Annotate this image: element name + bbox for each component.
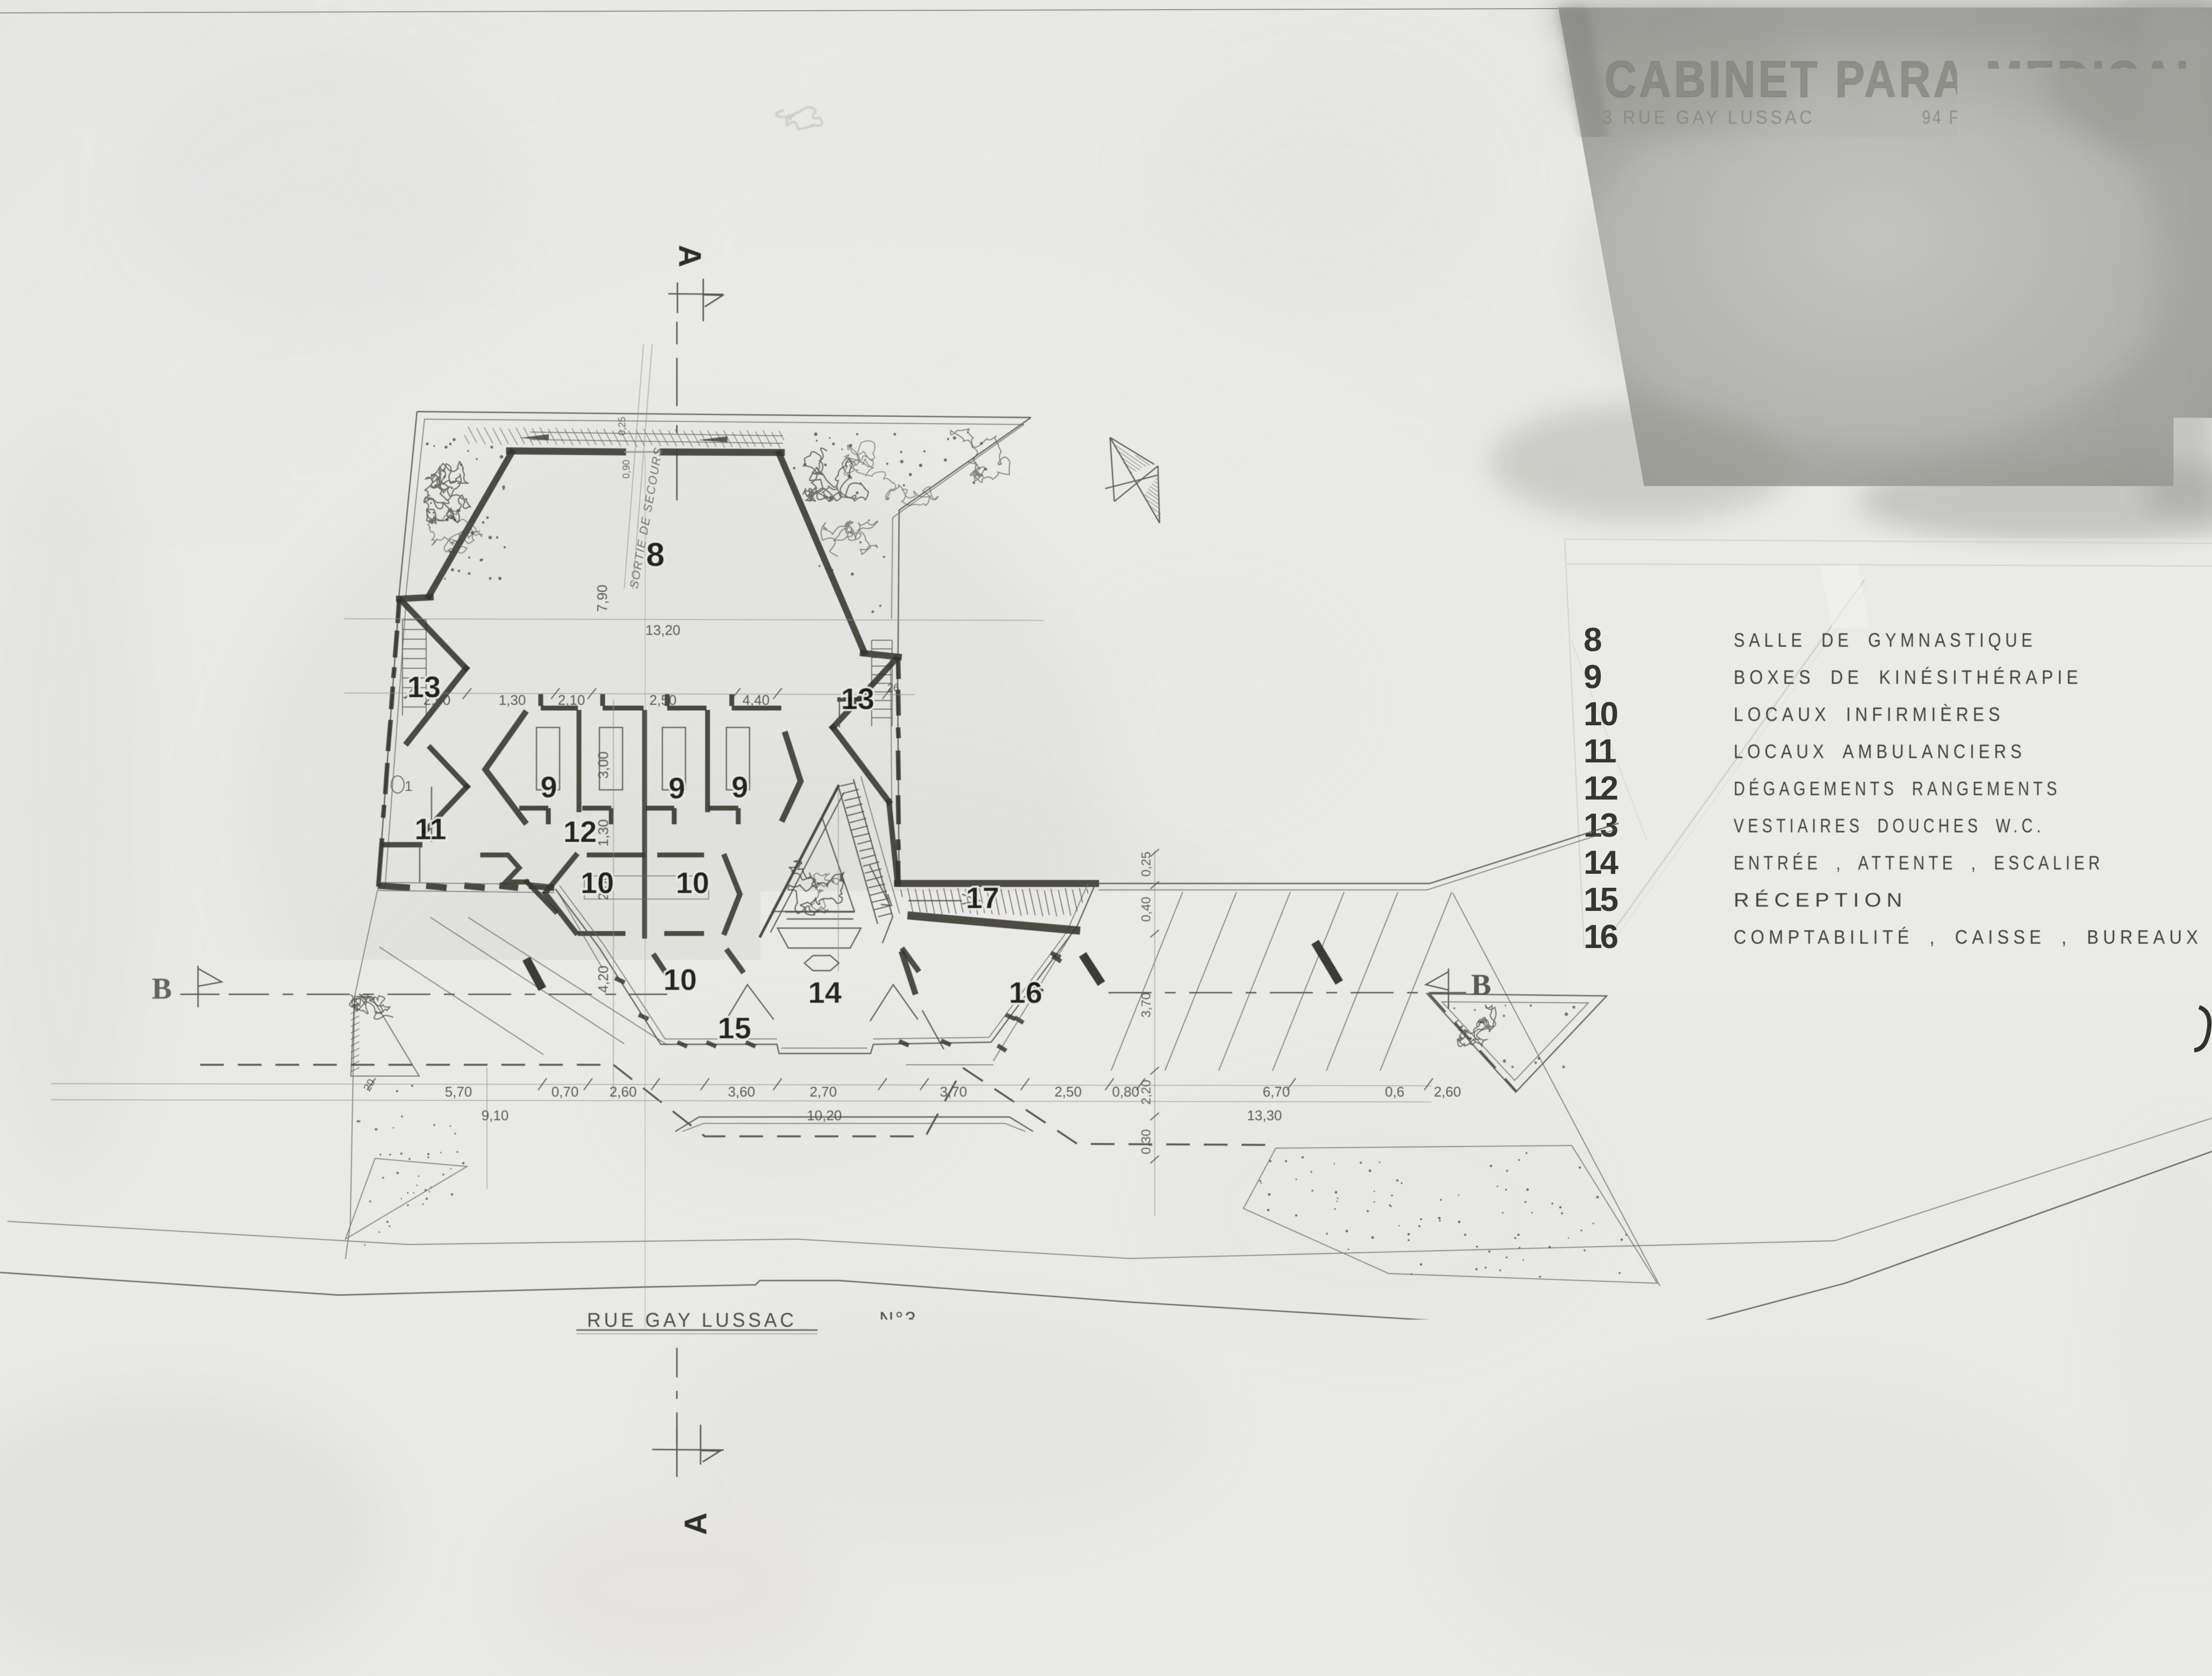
svg-text:ESCALIER 1° - DÉBARRAS: ESCALIER 1° - DÉBARRAS xyxy=(1734,963,2042,985)
svg-text:10: 10 xyxy=(676,866,709,900)
svg-text:11: 11 xyxy=(414,812,446,846)
svg-text:A: A xyxy=(672,245,707,267)
svg-text:10: 10 xyxy=(663,963,697,996)
svg-text:PARIS LE 9/5/74: PARIS LE 9/5/74 xyxy=(1985,461,2185,484)
svg-text:LOCAUX AMBULANCIERS: LOCAUX AMBULANCIERS xyxy=(1734,740,2026,762)
svg-text:0,90: 0,90 xyxy=(621,459,632,478)
svg-text:17: 17 xyxy=(966,881,999,915)
svg-text:14: 14 xyxy=(1584,844,1619,881)
svg-text:REZ -DE- CHAUSSEE: REZ -DE- CHAUSSEE xyxy=(1759,210,2110,244)
svg-text:ECHELLE : 1 cm/m: ECHELLE : 1 cm/m xyxy=(1965,355,2164,378)
svg-text:9: 9 xyxy=(731,770,748,804)
svg-text:4,40: 4,40 xyxy=(743,692,770,708)
svg-text:4,20: 4,20 xyxy=(595,966,611,993)
svg-text:8: 8 xyxy=(1584,621,1601,659)
svg-text:3,70: 3,70 xyxy=(1139,993,1154,1018)
svg-text:3 RUE GAY LUSSAC: 3 RUE GAY LUSSAC xyxy=(1602,107,1815,128)
svg-text:5,70: 5,70 xyxy=(445,1084,472,1100)
svg-text:0,6: 0,6 xyxy=(1385,1084,1404,1100)
svg-text:CABINET PARA-MEDICAL: CABINET PARA-MEDICAL xyxy=(1605,51,2206,108)
svg-text:0,25: 0,25 xyxy=(617,416,627,435)
svg-text:17: 17 xyxy=(1584,956,1617,993)
svg-text:2,10: 2,10 xyxy=(558,692,585,708)
svg-text:RUE GAY LUSSAC: RUE GAY LUSSAC xyxy=(587,1309,797,1331)
svg-text:N°3: N°3 xyxy=(879,1308,917,1330)
svg-text:2: 2 xyxy=(2125,247,2151,338)
svg-text:3,60: 3,60 xyxy=(728,1084,755,1100)
svg-text:2,70: 2,70 xyxy=(810,1084,837,1100)
svg-text:0,80: 0,80 xyxy=(1112,1084,1140,1100)
svg-text:A: A xyxy=(679,1512,713,1535)
svg-text:15: 15 xyxy=(718,1011,751,1045)
svg-text:2,60: 2,60 xyxy=(1434,1084,1461,1100)
svg-text:12: 12 xyxy=(1584,770,1617,807)
svg-text:1,30: 1,30 xyxy=(499,692,526,708)
svg-text:13: 13 xyxy=(407,670,441,704)
svg-text:13,30: 13,30 xyxy=(1247,1107,1282,1123)
svg-text:B: B xyxy=(152,972,172,1006)
svg-text:B: B xyxy=(1471,968,1491,1002)
svg-text:10: 10 xyxy=(1584,696,1617,733)
svg-text:16: 16 xyxy=(1584,918,1617,956)
svg-text:2,50: 2,50 xyxy=(649,692,677,708)
svg-text:3,70: 3,70 xyxy=(940,1084,967,1100)
svg-text:RÉCEPTION: RÉCEPTION xyxy=(1734,889,1907,911)
svg-text:PLAN: PLAN xyxy=(1837,170,1934,202)
svg-text:2,60: 2,60 xyxy=(610,1084,637,1100)
svg-text:9: 9 xyxy=(1584,659,1601,696)
svg-text:COMPTABILITÉ , CAISSE , BUREAU: COMPTABILITÉ , CAISSE , BUREAUX xyxy=(1734,926,2202,948)
svg-text:8: 8 xyxy=(646,536,665,574)
svg-text:11: 11 xyxy=(1584,733,1616,770)
svg-text:3,00: 3,00 xyxy=(595,752,611,779)
svg-text:6,70: 6,70 xyxy=(1263,1084,1290,1100)
svg-text:15: 15 xyxy=(1584,881,1617,918)
svg-text:7,90: 7,90 xyxy=(594,585,610,612)
svg-text:13: 13 xyxy=(841,682,874,716)
svg-text:12: 12 xyxy=(563,815,597,848)
svg-text:BOXES DE KINÉSITHÉRAPIE: BOXES DE KINÉSITHÉRAPIE xyxy=(1734,666,2082,688)
svg-text:2,50: 2,50 xyxy=(1055,1084,1082,1100)
svg-text:E PROPRIETAIRE.: E PROPRIETAIRE. xyxy=(1561,355,1758,378)
svg-text:9: 9 xyxy=(540,770,557,804)
svg-text:0,40: 0,40 xyxy=(1139,897,1154,922)
svg-text:SALLE DE GYMNASTIQUE: SALLE DE GYMNASTIQUE xyxy=(1734,629,2037,651)
svg-text:13,20: 13,20 xyxy=(645,622,680,638)
svg-text:10,20: 10,20 xyxy=(807,1107,842,1123)
svg-text:VESTIAIRES DOUCHES W.C.: VESTIAIRES DOUCHES W.C. xyxy=(1734,815,2045,837)
svg-text:26: 26 xyxy=(887,682,899,694)
svg-text:9,10: 9,10 xyxy=(482,1107,509,1123)
svg-text:16: 16 xyxy=(1009,975,1042,1009)
svg-text:94 FONTENAY-SOUS-BOIS: 94 FONTENAY-SOUS-BOIS xyxy=(1922,107,2154,128)
svg-text:0,30: 0,30 xyxy=(1139,1129,1154,1155)
svg-text:0,70: 0,70 xyxy=(552,1084,579,1100)
svg-text:1,30: 1,30 xyxy=(595,819,611,847)
svg-text:2,20: 2,20 xyxy=(1139,1080,1154,1105)
svg-text:9: 9 xyxy=(668,771,685,805)
svg-text:ENTRÉE , ATTENTE , ESCALIER: ENTRÉE , ATTENTE , ESCALIER xyxy=(1734,852,2104,874)
svg-text:IER D’ARCHITECTURE ET D’AME: IER D’ARCHITECTURE ET D’AME NAGEMENT 40 … xyxy=(1595,487,2208,507)
svg-text:DÉGAGEMENTS RANGEMENTS: DÉGAGEMENTS RANGEMENTS xyxy=(1734,777,2061,800)
svg-text:14: 14 xyxy=(808,975,842,1009)
svg-text:10: 10 xyxy=(581,866,614,900)
svg-text:1: 1 xyxy=(405,778,412,794)
svg-text:LOCAUX INFIRMIÈRES: LOCAUX INFIRMIÈRES xyxy=(1734,703,2004,725)
